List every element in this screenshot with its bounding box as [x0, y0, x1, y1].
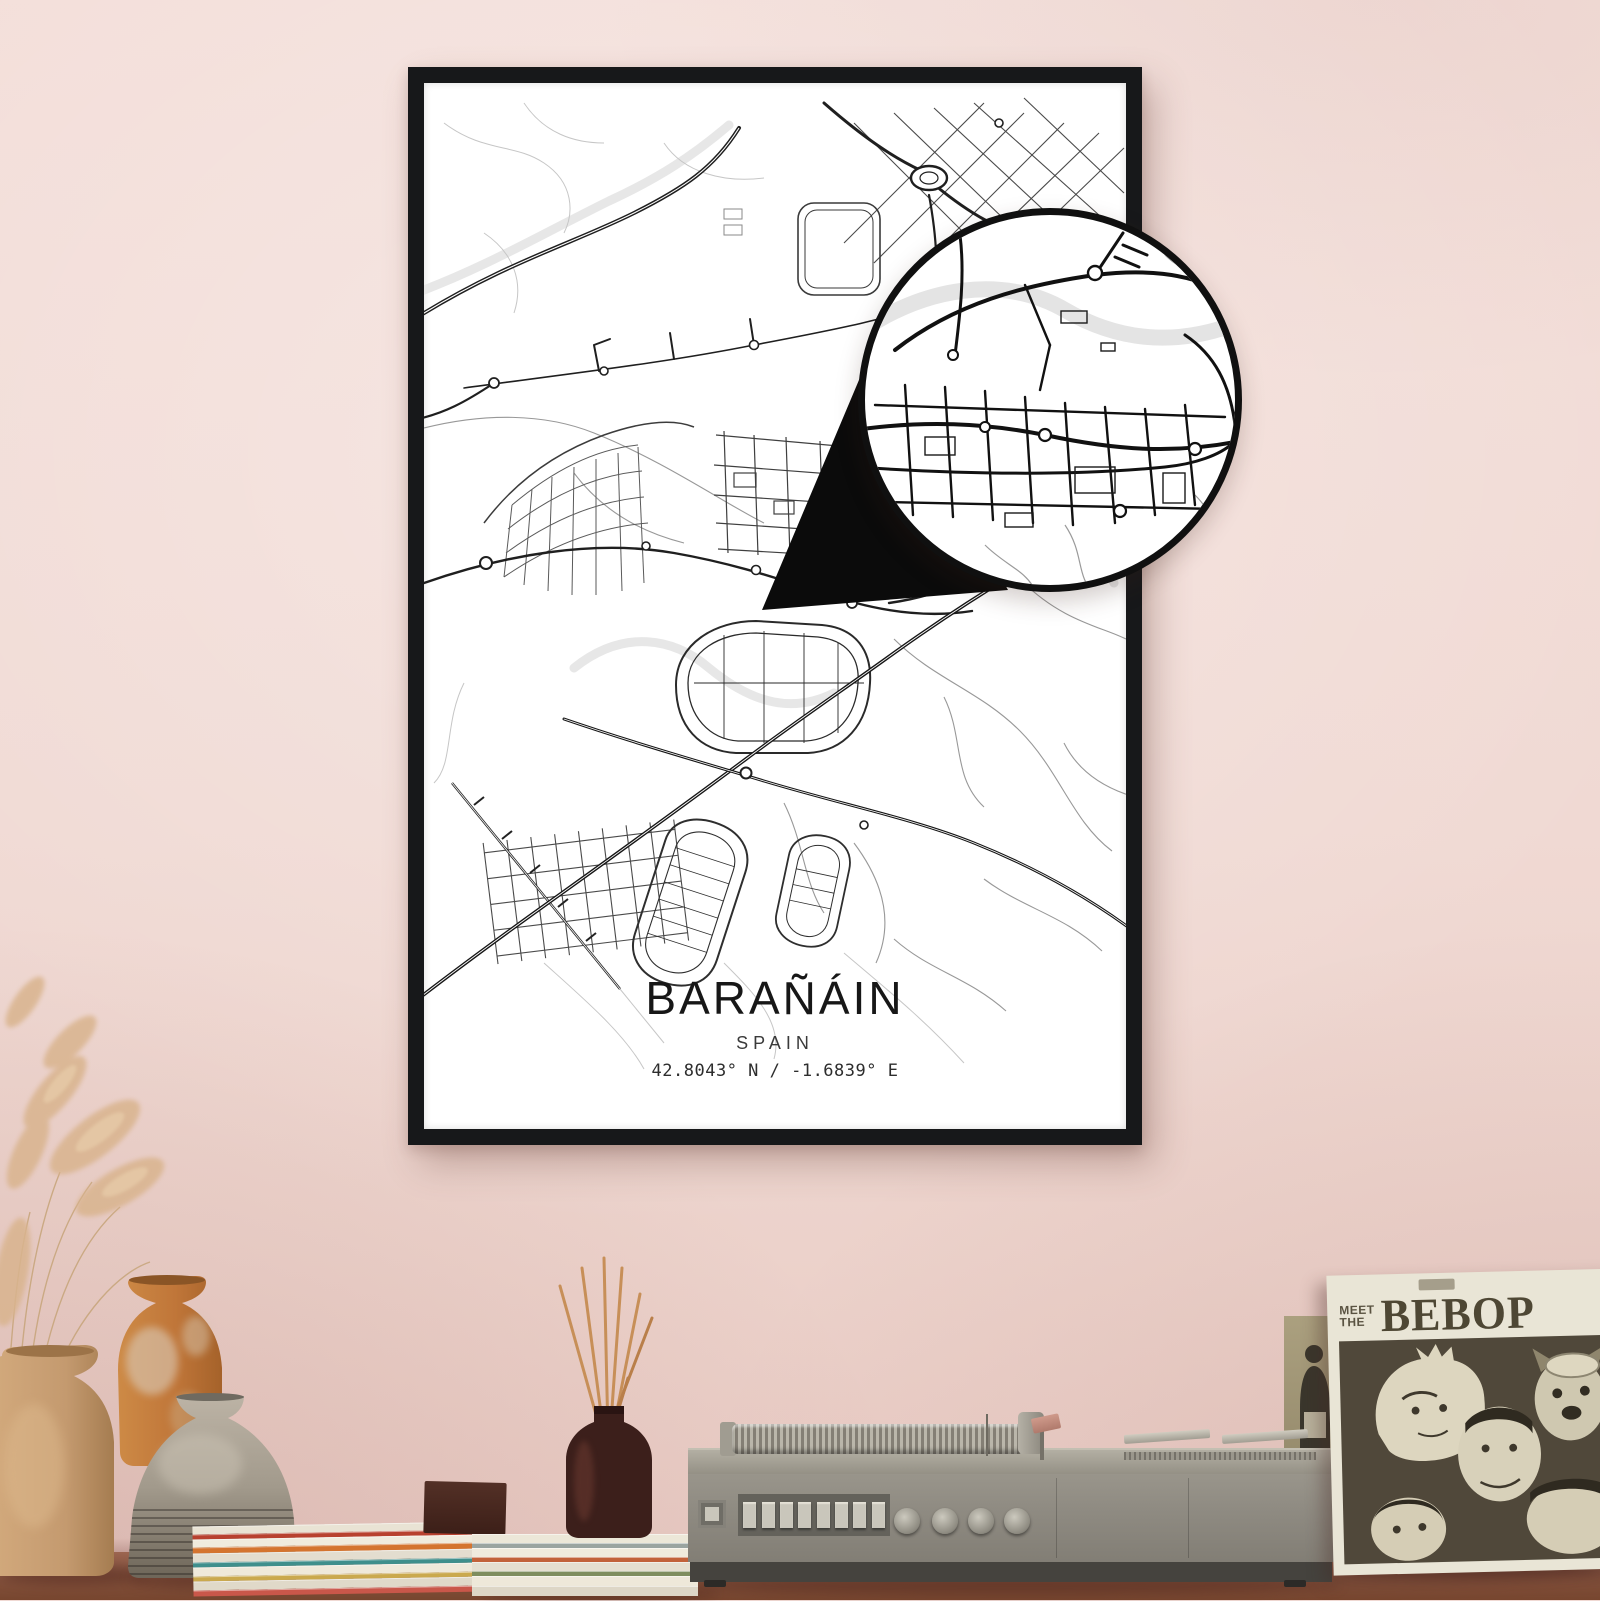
preset-buttons [738, 1494, 890, 1536]
dark-book [423, 1481, 506, 1535]
sleeve-title: BEBOP [1380, 1285, 1535, 1342]
tuning-knob [1004, 1508, 1030, 1534]
lever-track [1124, 1452, 1316, 1460]
map-lower-grid [483, 820, 688, 964]
turntable-plinth [690, 1562, 1332, 1582]
record-platter [732, 1424, 1024, 1454]
zoom-major-roads [865, 233, 1235, 525]
diffuser-bottle [566, 1406, 652, 1538]
sleeve-photo [1339, 1335, 1600, 1565]
poster-coordinates: 42.8043° N / -1.6839° E [424, 1061, 1126, 1081]
push-button [853, 1502, 866, 1528]
poster-country: SPAIN [424, 1033, 1126, 1054]
cue-lever [1222, 1429, 1308, 1444]
panel-divider [1188, 1478, 1189, 1558]
cue-lever [1124, 1429, 1210, 1444]
push-button [762, 1502, 775, 1528]
map-fan-grid [484, 422, 694, 595]
turntable [688, 1412, 1336, 1588]
power-button [698, 1500, 726, 1528]
turntable-face [688, 1474, 1336, 1562]
tonearm [1040, 1428, 1044, 1460]
record-sleeve: MEET THE BEBOP [1326, 1268, 1600, 1575]
sleeve-title-row: MEET THE BEBOP [1339, 1286, 1600, 1339]
volume-knob [894, 1508, 920, 1534]
map-rail-line [452, 783, 620, 989]
antenna [986, 1414, 988, 1456]
cue-levers [1124, 1430, 1316, 1460]
sleeve-pretitle: MEET THE [1339, 1304, 1375, 1329]
bass-knob [932, 1508, 958, 1534]
treble-knob [968, 1508, 994, 1534]
push-button [872, 1502, 885, 1528]
map-horseshoe-1 [623, 810, 757, 996]
push-button [780, 1502, 793, 1528]
map-oval-quarter [676, 621, 870, 753]
push-button [835, 1502, 848, 1528]
map-stadium [724, 203, 880, 295]
push-button [743, 1502, 756, 1528]
zoom-detail-circle [858, 208, 1242, 592]
zoom-detail-map [865, 215, 1235, 585]
poster-title: BARAÑÁIN [424, 971, 1126, 1025]
reed-diffuser [540, 1256, 680, 1556]
push-button [798, 1502, 811, 1528]
sleeve-faces [1339, 1335, 1600, 1565]
panel-divider [1056, 1478, 1057, 1558]
turntable-foot [1284, 1580, 1306, 1587]
push-button [817, 1502, 830, 1528]
turntable-foot [704, 1580, 726, 1587]
tan-vase [0, 1345, 114, 1576]
